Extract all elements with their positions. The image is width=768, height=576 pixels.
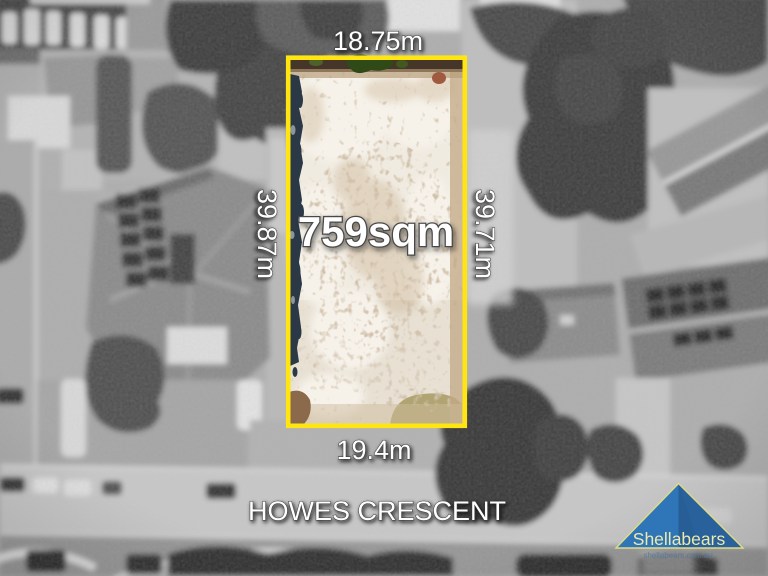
svg-text:39.71m: 39.71m: [470, 189, 500, 279]
svg-text:759sqm: 759sqm: [298, 208, 454, 255]
svg-text:Shellabears: Shellabears: [633, 529, 726, 549]
svg-text:shellabears.com.au: shellabears.com.au: [643, 551, 712, 560]
svg-text:19.4m: 19.4m: [336, 435, 411, 465]
svg-text:18.75m: 18.75m: [333, 26, 423, 56]
svg-text:39.87m: 39.87m: [252, 189, 282, 279]
svg-text:HOWES CRESCENT: HOWES CRESCENT: [248, 496, 506, 526]
